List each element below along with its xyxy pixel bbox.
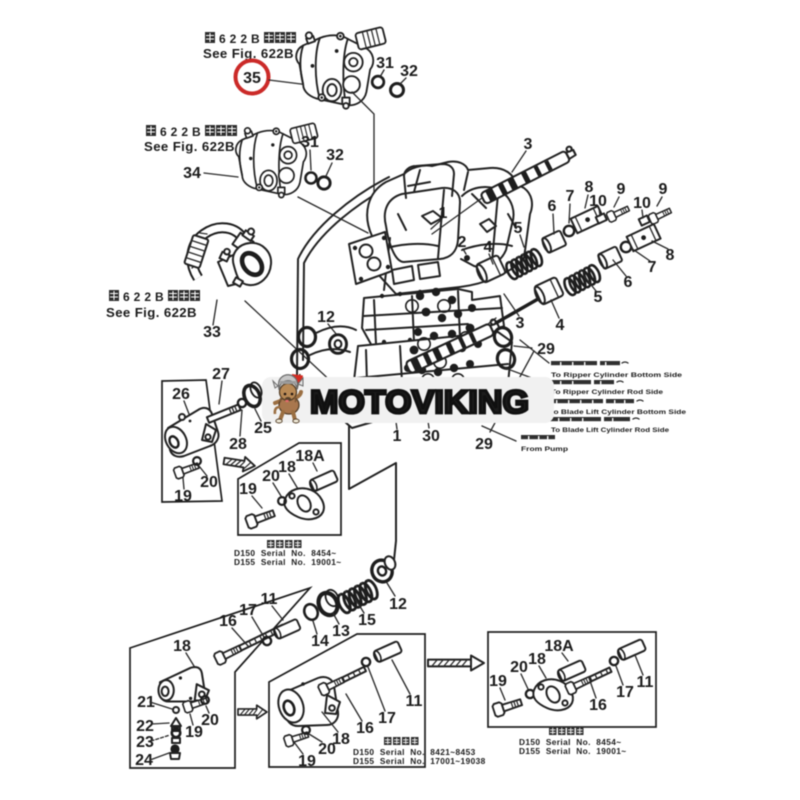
svg-text:25: 25	[254, 420, 272, 437]
svg-text:14: 14	[311, 633, 329, 650]
svg-text:16: 16	[356, 720, 374, 737]
svg-text:10: 10	[589, 193, 607, 210]
svg-text:20: 20	[318, 741, 336, 758]
svg-text:18A: 18A	[295, 448, 325, 465]
svg-text:7: 7	[648, 259, 657, 276]
svg-text:MOTOVIKING: MOTOVIKING	[310, 384, 529, 420]
svg-text:29: 29	[475, 436, 493, 453]
svg-text:622B: 622B	[219, 32, 264, 46]
svg-text:6: 6	[624, 274, 633, 291]
svg-text:D155 Serial No. 19001~: D155 Serial No. 19001~	[519, 746, 627, 756]
svg-text:5: 5	[594, 289, 603, 306]
svg-text:3: 3	[516, 315, 525, 332]
svg-text:30: 30	[422, 428, 440, 445]
svg-text:See Fig. 622B: See Fig. 622B	[144, 139, 235, 154]
svg-text:18: 18	[173, 638, 191, 655]
svg-text:28: 28	[229, 436, 247, 453]
svg-text:2: 2	[458, 234, 467, 251]
svg-text:33: 33	[203, 324, 221, 341]
svg-text:17: 17	[239, 602, 257, 619]
svg-text:18A: 18A	[544, 638, 574, 655]
svg-text:22: 22	[136, 718, 154, 735]
svg-text:9: 9	[659, 181, 668, 198]
svg-text:20: 20	[510, 659, 528, 676]
svg-text:27: 27	[212, 366, 230, 383]
svg-text:20: 20	[262, 468, 280, 485]
svg-text:32: 32	[400, 63, 418, 80]
svg-text:622B: 622B	[123, 290, 168, 304]
svg-text:19: 19	[185, 724, 203, 741]
svg-text:11: 11	[406, 693, 423, 710]
svg-text:19: 19	[174, 488, 192, 505]
svg-text:19: 19	[239, 481, 257, 498]
svg-text:15: 15	[358, 612, 376, 629]
svg-text:32: 32	[326, 147, 344, 164]
svg-text:D155 Serial No. 19001~: D155 Serial No. 19001~	[234, 557, 342, 567]
svg-text:3: 3	[524, 136, 533, 153]
svg-text:16: 16	[219, 613, 237, 630]
svg-text:D155 Serial No. 17001~19038: D155 Serial No. 17001~19038	[353, 756, 486, 766]
svg-text:31: 31	[376, 55, 394, 72]
svg-text:35: 35	[243, 70, 261, 87]
svg-text:19: 19	[489, 673, 507, 690]
svg-text:20: 20	[201, 712, 219, 729]
svg-text:16: 16	[589, 697, 607, 714]
svg-text:17: 17	[378, 710, 396, 727]
svg-text:See Fig. 622B: See Fig. 622B	[106, 305, 197, 320]
svg-text:18: 18	[528, 651, 546, 668]
svg-text:8: 8	[666, 247, 675, 264]
svg-text:See Fig. 622B: See Fig. 622B	[203, 46, 294, 61]
svg-text:7: 7	[566, 188, 575, 205]
svg-text:From Pump: From Pump	[521, 446, 568, 453]
svg-text:31: 31	[301, 134, 319, 151]
svg-text:9: 9	[617, 181, 626, 198]
svg-text:11: 11	[637, 674, 654, 691]
svg-text:1: 1	[439, 205, 448, 222]
svg-text:23: 23	[136, 734, 154, 751]
svg-text:622B: 622B	[160, 125, 205, 139]
svg-text:11: 11	[261, 591, 278, 608]
svg-text:5: 5	[514, 220, 523, 237]
svg-text:17: 17	[616, 684, 634, 701]
svg-text:To Ripper Cylinder Rod Side: To Ripper Cylinder Rod Side	[551, 389, 663, 396]
svg-text:To Blade Lift Cylinder Rod Sid: To Blade Lift Cylinder Rod Side	[551, 427, 669, 434]
svg-text:20: 20	[200, 474, 218, 491]
svg-text:19: 19	[298, 753, 316, 770]
svg-text:To Ripper Cylinder Bottom Side: To Ripper Cylinder Bottom Side	[551, 372, 682, 379]
svg-text:4: 4	[484, 239, 493, 256]
svg-text:34: 34	[183, 165, 201, 182]
svg-text:6: 6	[548, 198, 557, 215]
svg-text:4: 4	[556, 317, 565, 334]
svg-text:18: 18	[278, 459, 296, 476]
svg-text:26: 26	[172, 386, 190, 403]
svg-text:1: 1	[393, 428, 402, 445]
svg-text:13: 13	[332, 623, 350, 640]
svg-text:To Blade Lift Cylinder Bottom: To Blade Lift Cylinder Bottom Side	[549, 409, 686, 416]
svg-text:12: 12	[389, 596, 407, 613]
svg-text:12: 12	[317, 309, 335, 326]
